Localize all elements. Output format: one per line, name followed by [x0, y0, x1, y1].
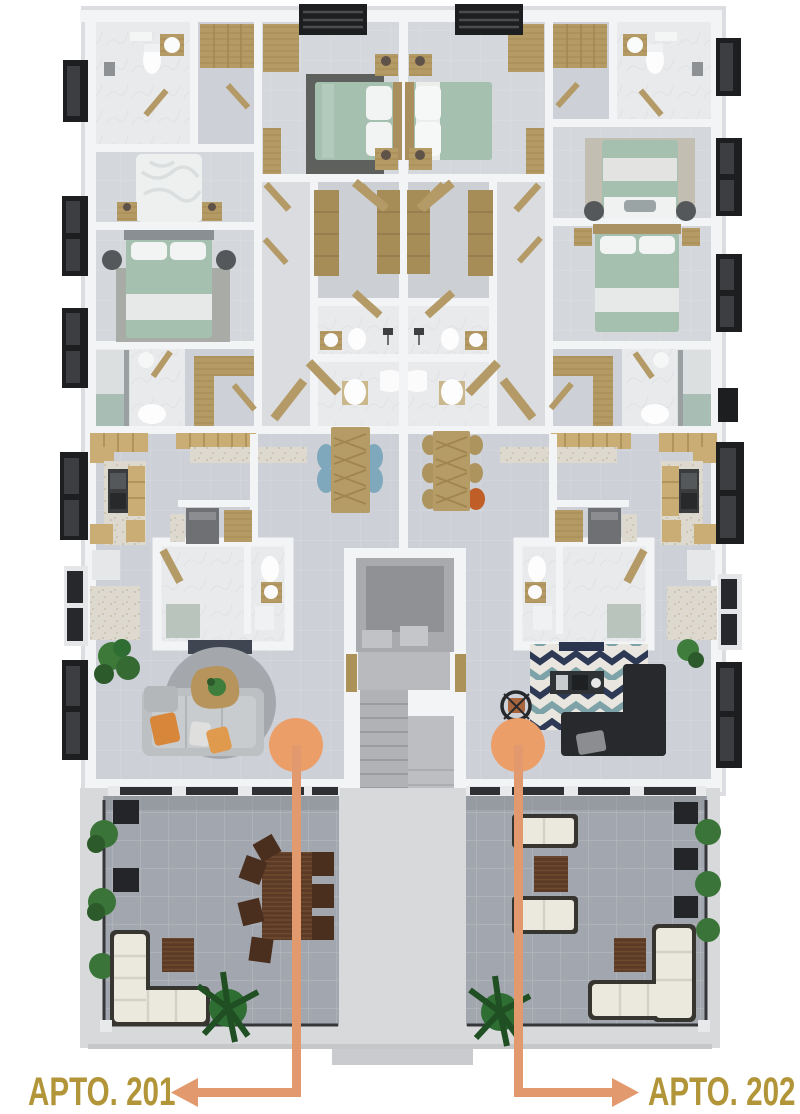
- svg-text:APTO. 201: APTO. 201: [28, 1070, 175, 1114]
- svg-text:APTO. 202: APTO. 202: [648, 1070, 795, 1114]
